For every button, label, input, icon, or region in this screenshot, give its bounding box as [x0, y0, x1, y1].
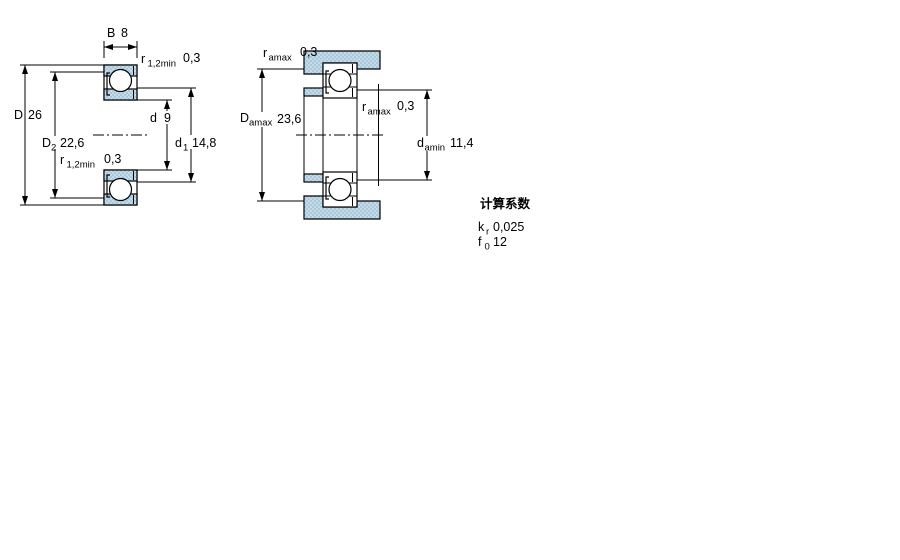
f0-factor-label: f: [478, 235, 482, 249]
bearing-top-half-section: [104, 65, 137, 100]
ra-top-subscript: amax: [269, 53, 292, 64]
D2-dimension-value: 22,6: [60, 136, 84, 150]
D-dimension-value: 26: [28, 108, 42, 122]
ra-top-value: 0,3: [300, 45, 317, 59]
bearing-drawing-page: B 8 r 1,2min 0,3: [0, 0, 900, 560]
r12-top-value: 0,3: [183, 51, 200, 65]
da-dimension-value: 11,4: [450, 136, 473, 150]
b-dimension-label: B: [107, 26, 115, 40]
ball-bottom: [110, 179, 132, 201]
da-dimension-label: d: [417, 136, 424, 150]
D2-dimension-subscript: 2: [51, 143, 56, 154]
ra-mid-subscript: amax: [368, 107, 391, 118]
d-dimension-label: d: [150, 111, 157, 125]
Da-dimension-subscript: amax: [249, 118, 272, 129]
bearing-bottom-half-section: [104, 170, 137, 205]
r12-top-subscript: 1,2min: [148, 59, 177, 70]
kr-factor-label: k: [478, 220, 485, 234]
d1-dimension-subscript: 1: [183, 143, 188, 154]
ra-mid-label: r: [362, 100, 366, 114]
ra-mid-value: 0,3: [397, 99, 414, 113]
d1-dimension-label: d: [175, 136, 182, 150]
mounted-bearing-bottom-half: [323, 172, 357, 207]
d1-dimension-value: 14,8: [192, 136, 216, 150]
mounted-bearing-top-half: [323, 63, 357, 98]
ra-top-label: r: [263, 46, 267, 60]
Da-dimension-value: 23,6: [277, 112, 301, 126]
bearing-cross-section-view: B 8 r 1,2min 0,3: [14, 26, 219, 205]
D-dimension-label: D: [14, 108, 23, 122]
kr-factor-subscript: r: [486, 227, 489, 238]
r12-mid-subscript: 1,2min: [67, 160, 96, 171]
shaft-shoulder-top: [304, 88, 323, 96]
Da-dimension-label: D: [240, 111, 249, 125]
r12-mid-label: r: [60, 153, 64, 167]
technical-drawing-canvas: B 8 r 1,2min 0,3: [0, 0, 900, 560]
calculation-factors: 计算系数 k r 0,025 f 0 12: [478, 196, 531, 253]
r12-mid-value: 0,3: [104, 152, 121, 166]
kr-factor-value: 0,025: [493, 220, 524, 234]
mounting-dimensions-view: D amax 23,6 r amax 0,3 r amax 0,3 d amin…: [238, 45, 473, 219]
ball-top-right-view: [329, 70, 351, 92]
calculation-factors-title: 计算系数: [480, 196, 531, 211]
r12-top-label: r: [141, 52, 145, 66]
D2-dimension-label: D: [42, 136, 51, 150]
ball-bottom-right-view: [329, 179, 351, 201]
d-dimension-value: 9: [164, 111, 171, 125]
da-dimension-subscript: amin: [425, 143, 446, 154]
b-dimension-value: 8: [121, 26, 128, 40]
ball-top: [110, 70, 132, 92]
f0-factor-value: 12: [493, 235, 507, 249]
f0-factor-subscript: 0: [485, 242, 490, 253]
shaft-shoulder-bottom: [304, 174, 323, 182]
